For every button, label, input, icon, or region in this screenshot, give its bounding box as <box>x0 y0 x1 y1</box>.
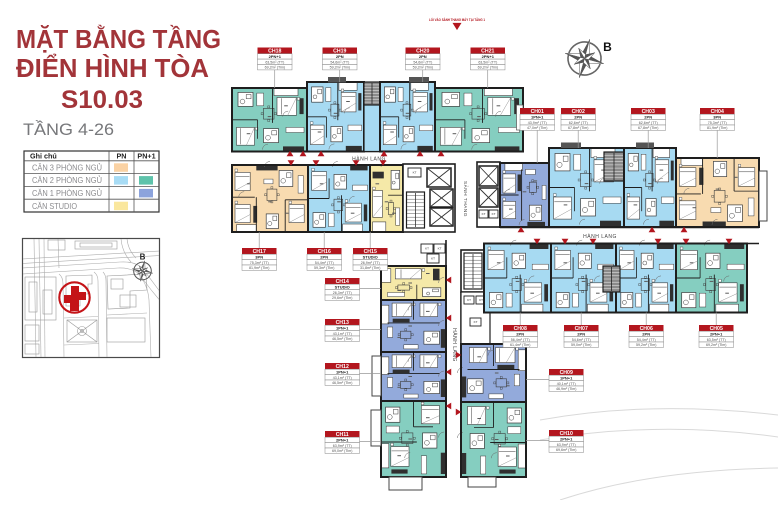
svg-text:3PN: 3PN <box>255 254 263 259</box>
svg-text:63,9m² (TT): 63,9m² (TT) <box>333 444 352 448</box>
svg-text:40,1m² (TT): 40,1m² (TT) <box>557 382 576 386</box>
svg-text:29,6m² (Tim): 29,6m² (Tim) <box>332 296 352 300</box>
svg-text:1PN+1: 1PN+1 <box>531 114 544 119</box>
svg-text:54,6m² (TT): 54,6m² (TT) <box>572 338 591 342</box>
svg-text:63,9m² (TT): 63,9m² (TT) <box>557 443 576 447</box>
svg-text:54,6m² (TT): 54,6m² (TT) <box>330 60 349 64</box>
svg-text:62,6m² (TT): 62,6m² (TT) <box>639 121 658 125</box>
svg-text:2PN+1: 2PN+1 <box>710 331 723 336</box>
svg-text:59,2m² (Tim): 59,2m² (Tim) <box>413 66 433 70</box>
svg-text:46,5m² (Tim): 46,5m² (Tim) <box>332 337 352 341</box>
svg-text:CĂN 3 PHÒNG NGỦ: CĂN 3 PHÒNG NGỦ <box>32 161 102 172</box>
svg-text:1PN+1: 1PN+1 <box>560 375 573 380</box>
svg-text:63,5m² (TT): 63,5m² (TT) <box>265 60 284 64</box>
svg-text:KT: KT <box>467 298 471 302</box>
svg-text:54,4m² (TT): 54,4m² (TT) <box>315 261 334 265</box>
svg-text:2PN: 2PN <box>336 54 344 59</box>
svg-text:CĂN 2 PHÒNG NGỦ: CĂN 2 PHÒNG NGỦ <box>32 174 102 185</box>
svg-text:KT: KT <box>482 212 486 216</box>
svg-text:STUDIO: STUDIO <box>335 284 350 289</box>
svg-text:69,2m² (Tim): 69,2m² (Tim) <box>478 66 498 70</box>
svg-text:1PN+1: 1PN+1 <box>336 369 349 374</box>
svg-text:B: B <box>140 253 146 262</box>
svg-text:2PN+1: 2PN+1 <box>336 437 349 442</box>
svg-text:75,3m² (TT): 75,3m² (TT) <box>250 261 269 265</box>
svg-text:63,5m² (TT): 63,5m² (TT) <box>707 338 726 342</box>
svg-text:54,4m² (TT): 54,4m² (TT) <box>637 338 656 342</box>
svg-text:54,6m² (TT): 54,6m² (TT) <box>413 60 432 64</box>
svg-text:59,3m² (Tim): 59,3m² (Tim) <box>314 266 334 270</box>
svg-text:62,6m² (TT): 62,6m² (TT) <box>569 121 588 125</box>
svg-text:STUDIO: STUDIO <box>363 254 378 259</box>
svg-text:1PN+1: 1PN+1 <box>336 325 349 330</box>
svg-text:KT: KT <box>492 212 496 216</box>
svg-text:CĂN 1 PHÒNG NGỦ: CĂN 1 PHÒNG NGỦ <box>32 187 102 198</box>
svg-text:2PN: 2PN <box>577 331 585 336</box>
svg-text:ĐIỂN HÌNH TÒA: ĐIỂN HÌNH TÒA <box>16 53 209 83</box>
svg-text:S10.03: S10.03 <box>61 86 143 114</box>
svg-text:2PN: 2PN <box>642 331 650 336</box>
svg-text:69,0m² (Tim): 69,0m² (Tim) <box>332 449 352 453</box>
svg-text:TẦNG 4-26: TẦNG 4-26 <box>23 120 114 139</box>
svg-text:KT: KT <box>479 298 483 302</box>
svg-text:59,2m² (Tim): 59,2m² (Tim) <box>636 343 656 347</box>
svg-text:31,8m² (Tim): 31,8m² (Tim) <box>360 266 380 270</box>
svg-text:46,5m² (Tim): 46,5m² (Tim) <box>332 381 352 385</box>
svg-text:59,2m² (Tim): 59,2m² (Tim) <box>330 66 350 70</box>
svg-text:LỐI VÀO SẢNH THANG MÁY TẠI TẦN: LỐI VÀO SẢNH THANG MÁY TẠI TẦNG 1 <box>429 17 485 22</box>
svg-text:69,6m² (Tim): 69,6m² (Tim) <box>556 448 576 452</box>
svg-text:26,3m² (TT): 26,3m² (TT) <box>333 291 352 295</box>
svg-text:56,4m² (TT): 56,4m² (TT) <box>511 338 530 342</box>
svg-text:2PN: 2PN <box>419 54 427 59</box>
svg-text:2PN: 2PN <box>320 254 328 259</box>
svg-text:67,8m² (Tim): 67,8m² (Tim) <box>638 126 658 130</box>
svg-text:67,8m² (Tim): 67,8m² (Tim) <box>568 126 588 130</box>
svg-text:69,2m² (Tim): 69,2m² (Tim) <box>265 66 285 70</box>
svg-text:2PN: 2PN <box>644 114 652 119</box>
svg-text:75,3m² (TT): 75,3m² (TT) <box>708 121 727 125</box>
svg-text:SẢNH THANG: SẢNH THANG <box>463 181 469 217</box>
svg-text:26,9m² (TT): 26,9m² (TT) <box>361 261 380 265</box>
svg-text:KT: KT <box>474 320 478 324</box>
svg-text:CĂN STUDIO: CĂN STUDIO <box>32 201 77 211</box>
svg-text:43,1m² (TT): 43,1m² (TT) <box>333 332 352 336</box>
svg-text:2PN: 2PN <box>516 331 524 336</box>
svg-text:MẶT BẰNG TẦNG: MẶT BẰNG TẦNG <box>16 24 221 54</box>
svg-text:43,1m² (TT): 43,1m² (TT) <box>333 376 352 380</box>
svg-text:81,9m² (Tim): 81,9m² (Tim) <box>249 266 269 270</box>
svg-text:3PN: 3PN <box>713 114 721 119</box>
svg-text:KT: KT <box>413 171 417 175</box>
svg-text:46,9m² (Tim): 46,9m² (Tim) <box>556 387 576 391</box>
svg-text:KT: KT <box>425 247 429 251</box>
svg-text:59,0m² (Tim): 59,0m² (Tim) <box>571 343 591 347</box>
svg-text:HÀNH LANG: HÀNH LANG <box>583 233 617 240</box>
svg-text:2PN+1: 2PN+1 <box>560 436 573 441</box>
svg-text:69,2m² (Tim): 69,2m² (Tim) <box>706 343 726 347</box>
svg-text:61,4m² (Tim): 61,4m² (Tim) <box>510 343 530 347</box>
svg-text:2PN+1: 2PN+1 <box>269 54 282 59</box>
svg-text:B: B <box>603 40 612 54</box>
svg-text:Ghi chú: Ghi chú <box>30 152 57 161</box>
svg-text:2PN: 2PN <box>574 114 582 119</box>
svg-text:63,5m² (TT): 63,5m² (TT) <box>478 60 497 64</box>
svg-text:PN+1: PN+1 <box>137 152 155 161</box>
svg-text:KT: KT <box>438 247 442 251</box>
svg-text:2PN+1: 2PN+1 <box>482 54 495 59</box>
svg-text:47,0m² (Tim): 47,0m² (Tim) <box>527 126 547 130</box>
svg-text:81,9m² (Tim): 81,9m² (Tim) <box>707 126 727 130</box>
svg-text:KT: KT <box>431 257 435 261</box>
svg-text:PN: PN <box>117 152 127 161</box>
svg-text:43,9m² (TT): 43,9m² (TT) <box>528 121 547 125</box>
